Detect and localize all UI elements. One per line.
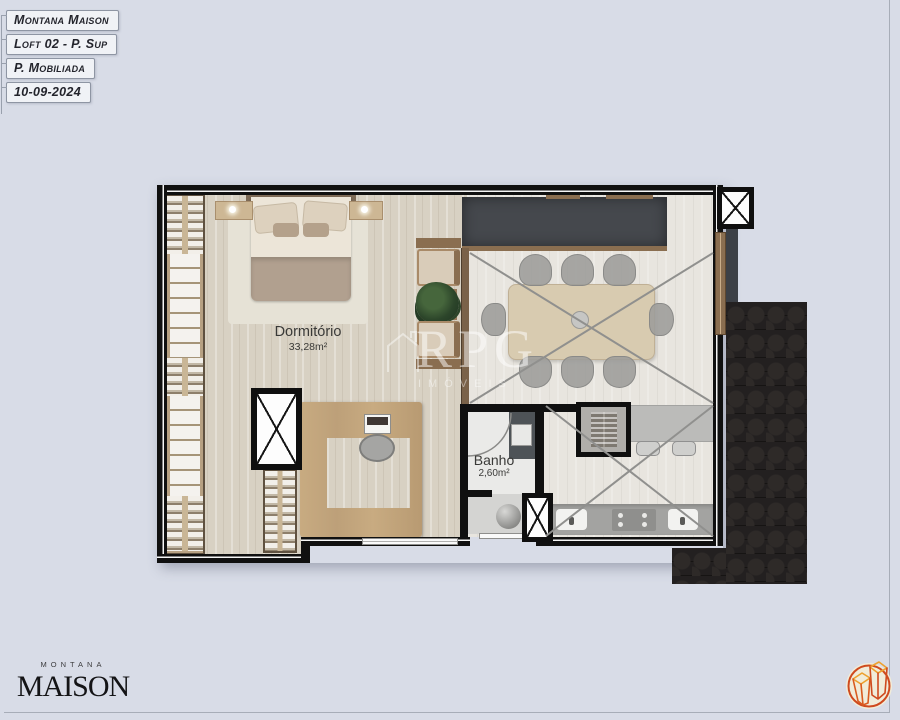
room-area: 2,60m² [453, 468, 535, 480]
bed-blanket [251, 257, 351, 301]
dining-chair [649, 303, 674, 336]
kitchen-island [630, 405, 714, 442]
wardrobe-shelves [167, 254, 203, 358]
wall-kitchen-top [536, 404, 581, 412]
stool [672, 441, 696, 456]
wall-bath-mid [460, 490, 492, 497]
roof-texture [726, 302, 807, 584]
burner-icon [618, 522, 623, 527]
stool [636, 441, 660, 456]
bath-sink [511, 424, 532, 446]
title-project: Montana Maison [6, 10, 119, 31]
floorplan-page: { "title_block": { "items": ["Montana Ma… [0, 0, 900, 720]
wall-left [157, 185, 167, 563]
counter-trim [462, 246, 667, 251]
side-table [416, 359, 461, 369]
wood-divider [461, 248, 469, 405]
wardrobe-clothes [167, 358, 203, 396]
room-label-banho: Banho 2,60m² [453, 452, 535, 480]
plant-icon [416, 282, 459, 323]
bed [251, 197, 351, 301]
dining-chair [561, 254, 594, 286]
room-name: Dormitório [238, 324, 378, 341]
side-table [416, 238, 461, 248]
pantry-box [576, 402, 631, 457]
armchair [417, 321, 460, 358]
table-centerpiece [571, 311, 589, 329]
wall-bath-right [535, 404, 544, 496]
pillow-small [303, 223, 329, 237]
wardrobe-shelves [167, 396, 203, 496]
burner-icon [618, 513, 623, 518]
burner-icon [642, 513, 647, 518]
rpg-crystal-logo-icon [842, 655, 896, 713]
roof-texture [672, 548, 726, 584]
wardrobe-clothes [167, 196, 203, 254]
dining-chair [561, 356, 594, 388]
dining-chair [519, 356, 552, 388]
dining-chair [603, 356, 636, 388]
dining-chair [603, 254, 636, 286]
room-name: Banho [453, 452, 535, 468]
kitchen-sink [556, 509, 587, 530]
dining-chair [481, 303, 506, 336]
faucet-icon [569, 517, 574, 525]
wardrobe-clothes [167, 496, 203, 551]
desk-chair [359, 434, 395, 462]
wall-bottom [157, 554, 310, 563]
shaft-icon [717, 187, 754, 229]
title-date: 10-09-2024 [6, 82, 91, 103]
dining-chair [519, 254, 552, 286]
brand-top-label: MONTANA [12, 660, 134, 669]
room-area: 33,28m² [238, 341, 378, 353]
floor-plan: Dormitório 33,28m² Banho 2,60m² RPG IMÓV… [0, 0, 900, 720]
wardrobe [263, 469, 297, 553]
wall-bottom [536, 537, 723, 546]
wall-sliver [726, 228, 738, 302]
cooktop [612, 509, 656, 531]
window-line [363, 541, 457, 542]
laptop-icon [364, 414, 391, 434]
kitchen-sink [668, 509, 698, 530]
title-unit: Loft 02 - P. Sup [6, 34, 117, 55]
round-sink [496, 504, 521, 529]
window [479, 533, 523, 539]
wall-bath-top [460, 404, 545, 412]
faucet-icon [680, 517, 685, 525]
window [362, 538, 458, 545]
laptop-screen [367, 417, 388, 425]
shaft-icon [251, 388, 302, 470]
brand-main-label: MAISON [12, 670, 134, 704]
appliance-icon [591, 412, 617, 447]
armchair [417, 249, 460, 286]
pillow-small [273, 223, 299, 237]
lamp-icon [229, 206, 236, 213]
window-line [720, 233, 721, 334]
lamp-icon [361, 206, 368, 213]
kitchen-counter-dark [462, 197, 667, 247]
title-plan-type: P. Mobiliada [6, 58, 95, 79]
room-label-dormitorio: Dormitório 33,28m² [238, 324, 378, 353]
title-block: Montana Maison Loft 02 - P. Sup P. Mobil… [6, 10, 119, 106]
wardrobe [165, 194, 205, 555]
shaft-icon [522, 493, 553, 542]
wall-top [157, 185, 723, 195]
brand-logo: MONTANA MAISON [12, 660, 134, 704]
burner-icon [642, 522, 647, 527]
window [715, 232, 726, 335]
